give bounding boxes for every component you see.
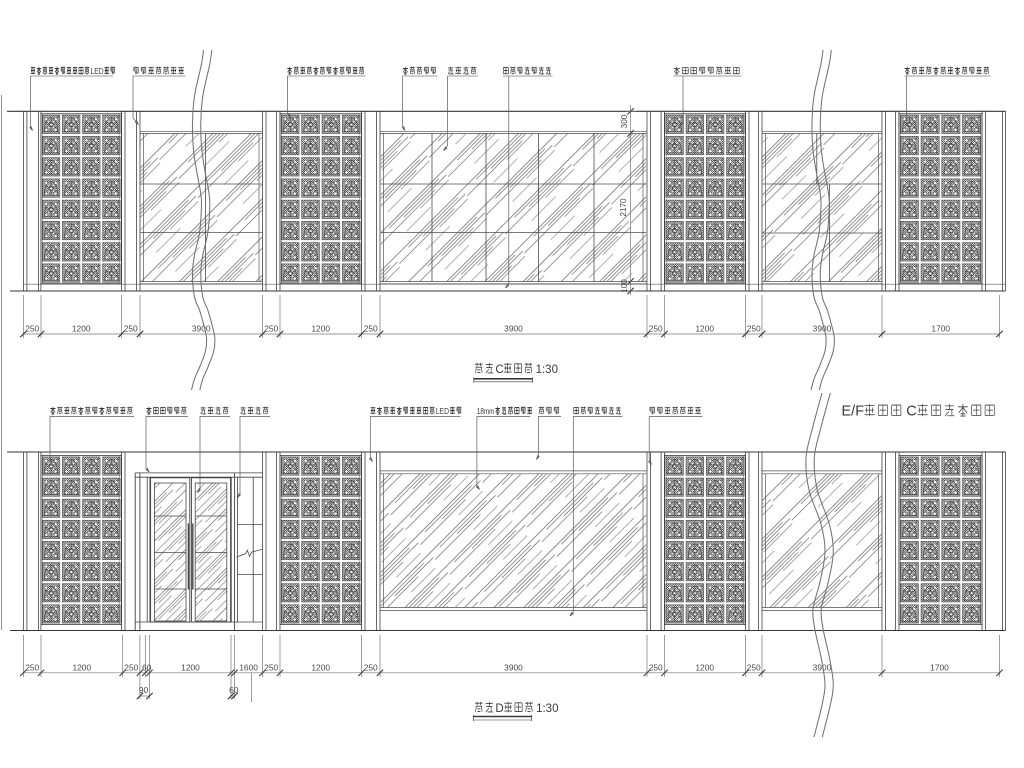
svg-text:90: 90: [139, 685, 149, 695]
svg-text:250: 250: [264, 324, 278, 334]
svg-text:250: 250: [124, 324, 138, 334]
svg-text:1200: 1200: [695, 662, 714, 672]
svg-text:60: 60: [142, 662, 152, 672]
svg-text:250: 250: [124, 662, 138, 672]
svg-text:2170: 2170: [619, 198, 628, 217]
svg-text:3900: 3900: [192, 324, 211, 334]
svg-text:3900: 3900: [813, 324, 832, 334]
svg-text:3900: 3900: [504, 662, 523, 672]
svg-text:1200: 1200: [311, 324, 330, 334]
svg-text:LED: LED: [436, 406, 449, 416]
svg-text:1200: 1200: [695, 324, 714, 334]
svg-text:1200: 1200: [311, 662, 330, 672]
svg-text:300: 300: [620, 114, 629, 128]
svg-text:60: 60: [229, 685, 239, 695]
svg-text:1200: 1200: [181, 662, 200, 672]
svg-text:250: 250: [649, 324, 663, 334]
svg-text:250: 250: [364, 662, 378, 672]
svg-text:250: 250: [264, 662, 278, 672]
svg-text:18mm: 18mm: [477, 406, 495, 416]
svg-text:1:30: 1:30: [536, 703, 558, 715]
svg-text:1600: 1600: [239, 662, 258, 672]
svg-text:250: 250: [747, 324, 761, 334]
svg-text:250: 250: [25, 662, 39, 672]
svg-text:1700: 1700: [931, 324, 950, 334]
svg-text:3900: 3900: [504, 324, 523, 334]
svg-text:250: 250: [25, 324, 39, 334]
svg-text:250: 250: [364, 324, 378, 334]
svg-text:C: C: [495, 364, 503, 376]
svg-text:100: 100: [620, 279, 629, 293]
svg-text:250: 250: [649, 662, 663, 672]
svg-text:LED: LED: [91, 66, 104, 76]
svg-text:1700: 1700: [930, 662, 949, 672]
svg-text:C: C: [906, 404, 916, 420]
svg-text:1200: 1200: [72, 324, 91, 334]
svg-text:E/F: E/F: [842, 404, 865, 420]
svg-text:D: D: [495, 703, 503, 715]
svg-text:250: 250: [747, 662, 761, 672]
svg-text:1200: 1200: [72, 662, 91, 672]
svg-text:1:30: 1:30: [536, 364, 558, 376]
